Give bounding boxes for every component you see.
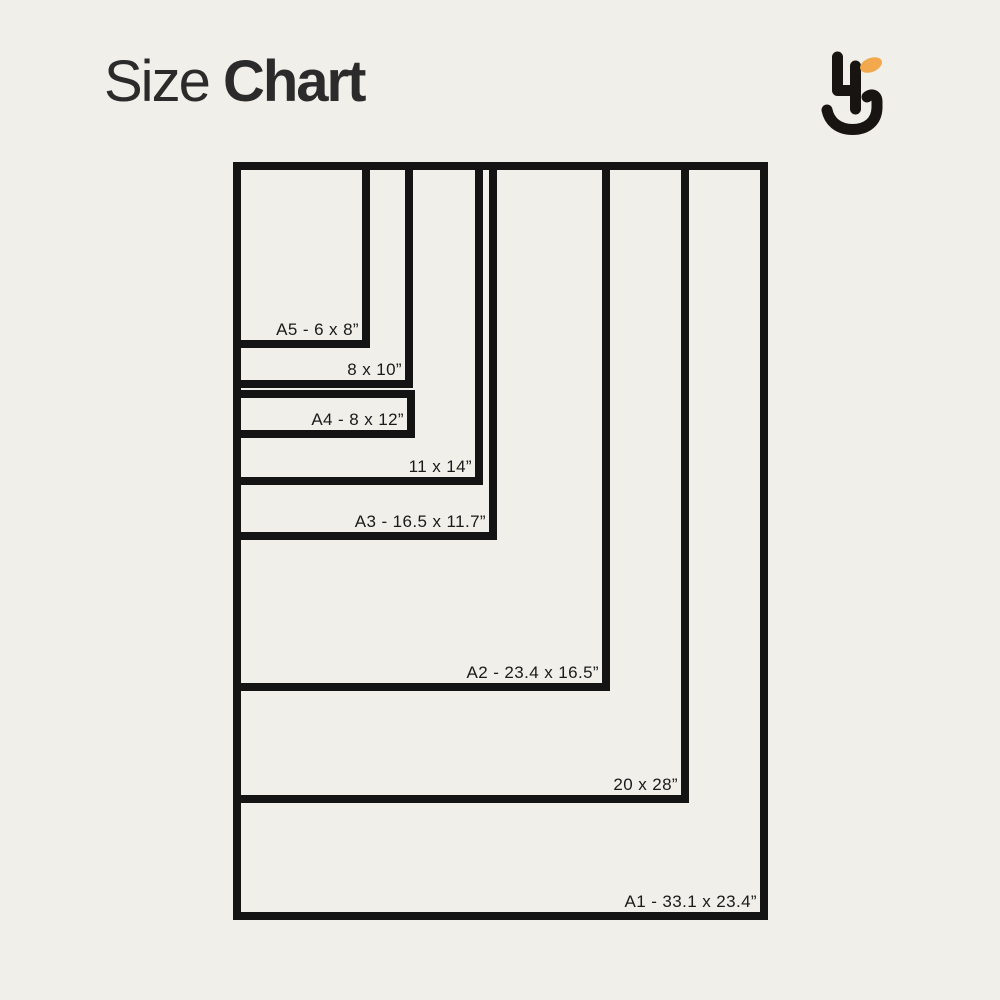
size-label-a5: A5 - 6 x 8”	[276, 321, 359, 338]
size-label-a1: A1 - 33.1 x 23.4”	[625, 893, 757, 910]
size-label-20x28: 20 x 28”	[613, 776, 678, 793]
size-chart-canvas: Size Chart A1 - 33.1 x 23.4” 20 x 28” A2…	[0, 0, 1000, 1000]
size-label-8x10: 8 x 10”	[347, 361, 402, 378]
size-label-a3: A3 - 16.5 x 11.7”	[355, 513, 486, 530]
size-label-a4: A4 - 8 x 12”	[311, 411, 404, 428]
size-label-a2: A2 - 23.4 x 16.5”	[467, 664, 599, 681]
size-rectangles: A1 - 33.1 x 23.4” 20 x 28” A2 - 23.4 x 1…	[0, 0, 1000, 1000]
size-rect-a5: A5 - 6 x 8”	[233, 162, 370, 348]
size-label-11x14: 11 x 14”	[409, 458, 472, 475]
size-rect-a4: A4 - 8 x 12”	[233, 390, 415, 438]
